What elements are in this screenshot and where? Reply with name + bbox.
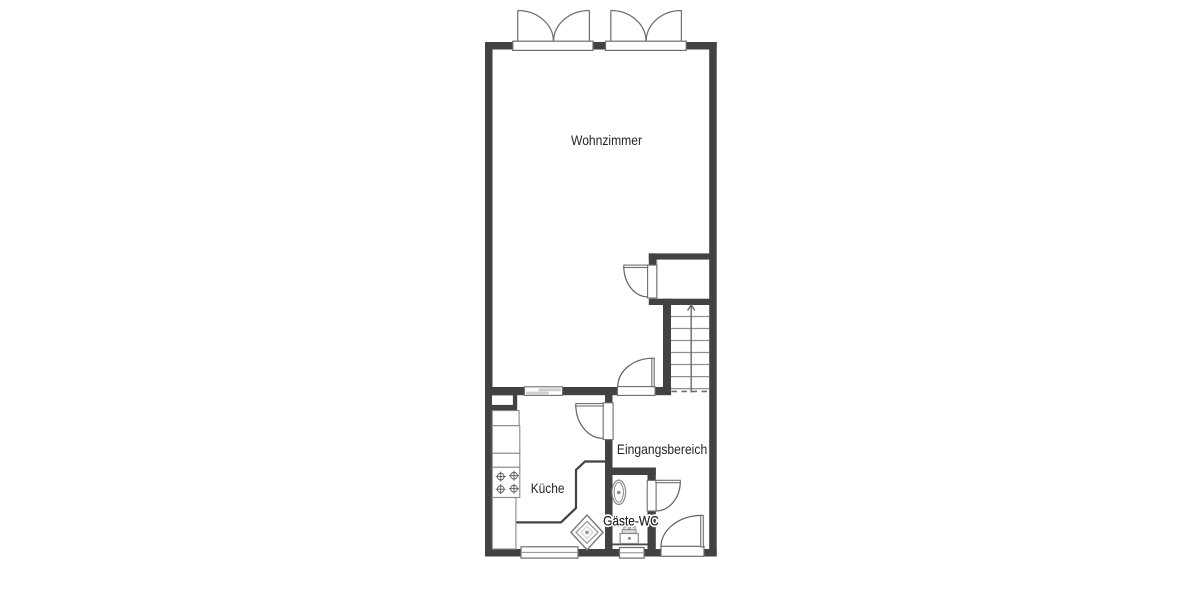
svg-text:Wohnzimmer: Wohnzimmer: [571, 133, 642, 148]
svg-text:Küche: Küche: [531, 481, 565, 496]
svg-text:Gäste-WC: Gäste-WC: [603, 513, 659, 528]
svg-text:Eingangsbereich: Eingangsbereich: [617, 442, 707, 457]
